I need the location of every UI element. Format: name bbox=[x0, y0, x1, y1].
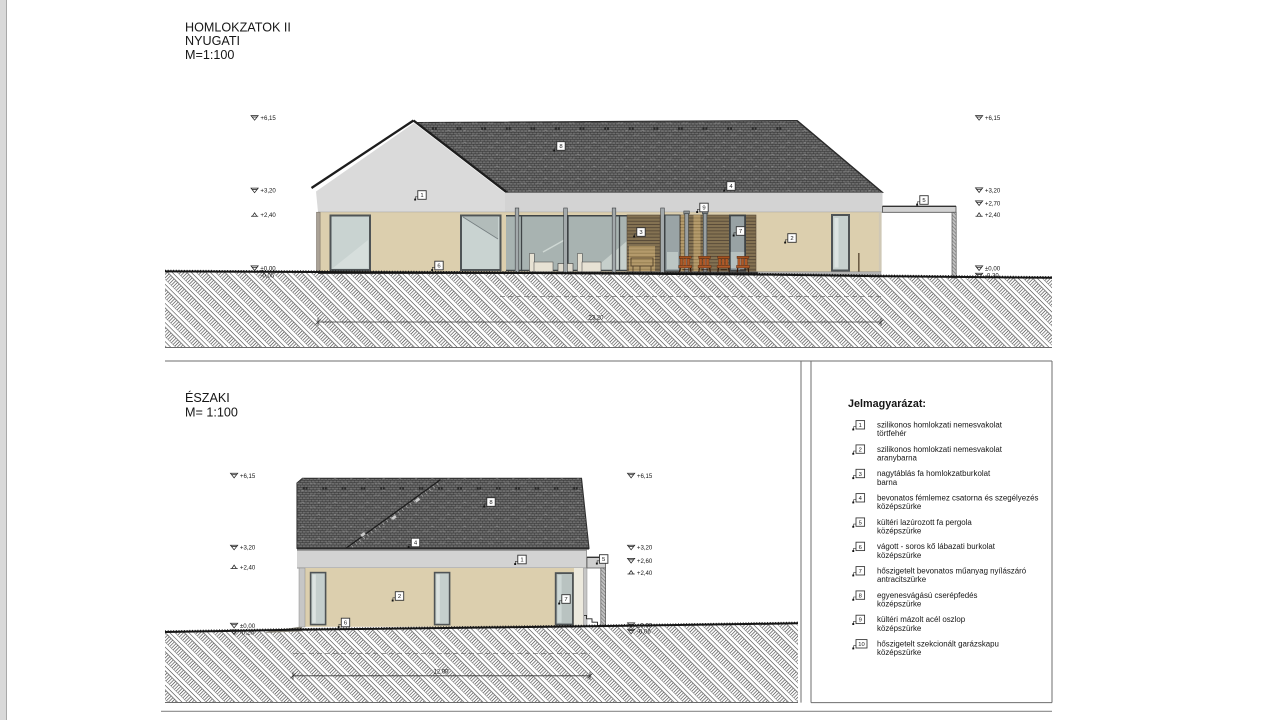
svg-text:hőszigetelt szekcionált garázs: hőszigetelt szekcionált garázskapu bbox=[877, 640, 999, 649]
svg-text:+6,15: +6,15 bbox=[260, 115, 276, 122]
svg-text:+6,15: +6,15 bbox=[985, 115, 1001, 122]
svg-text:-0,06: -0,06 bbox=[637, 629, 652, 636]
svg-text:+2,40: +2,40 bbox=[260, 212, 276, 219]
svg-text:2: 2 bbox=[859, 447, 862, 453]
svg-text:+3,20: +3,20 bbox=[637, 545, 653, 552]
svg-text:+2,40: +2,40 bbox=[985, 212, 1001, 219]
svg-text:középszürke: középszürke bbox=[877, 648, 922, 657]
svg-text:+3,20: +3,20 bbox=[240, 545, 256, 552]
svg-text:5: 5 bbox=[859, 520, 862, 526]
svg-text:kültéri lazúrozott fa pergola: kültéri lazúrozott fa pergola bbox=[877, 518, 972, 527]
svg-text:7: 7 bbox=[739, 229, 742, 235]
svg-text:szilikonos homlokzati nemesvak: szilikonos homlokzati nemesvakolat bbox=[877, 445, 1003, 454]
svg-text:kültéri mázolt acél oszlop: kültéri mázolt acél oszlop bbox=[877, 615, 966, 624]
svg-text:12,00: 12,00 bbox=[433, 670, 449, 676]
svg-text:1: 1 bbox=[859, 423, 862, 429]
svg-text:szilikonos homlokzati nemesvak: szilikonos homlokzati nemesvakolat bbox=[877, 421, 1003, 430]
svg-text:+3,20: +3,20 bbox=[985, 187, 1001, 194]
svg-text:2: 2 bbox=[398, 594, 401, 600]
svg-text:7: 7 bbox=[859, 569, 862, 575]
svg-text:hőszigetelt bevonatos műanyag: hőszigetelt bevonatos műanyag nyílászáró bbox=[877, 567, 1027, 576]
svg-text:-0,05: -0,05 bbox=[260, 272, 275, 279]
svg-text:aranybarna: aranybarna bbox=[877, 454, 918, 463]
svg-text:8: 8 bbox=[859, 593, 862, 599]
svg-text:10: 10 bbox=[858, 642, 864, 648]
svg-text:Jelmagyarázat:: Jelmagyarázat: bbox=[848, 398, 926, 410]
svg-text:7: 7 bbox=[564, 597, 567, 603]
svg-text:ÉSZAKI: ÉSZAKI bbox=[185, 390, 230, 405]
svg-text:+2,70: +2,70 bbox=[985, 200, 1001, 207]
svg-text:középszürke: középszürke bbox=[877, 527, 922, 536]
svg-text:+2,40: +2,40 bbox=[637, 570, 653, 577]
svg-text:1: 1 bbox=[420, 193, 423, 199]
svg-text:bevonatos fémlemez csatorna és: bevonatos fémlemez csatorna és szegélyez… bbox=[877, 494, 1038, 503]
svg-text:1: 1 bbox=[520, 558, 523, 564]
svg-text:3: 3 bbox=[859, 472, 862, 478]
svg-text:középszürke: középszürke bbox=[877, 624, 922, 633]
svg-text:+3,20: +3,20 bbox=[260, 188, 276, 195]
svg-text:középszürke: középszürke bbox=[877, 502, 922, 511]
svg-text:nagytáblás fa homlokzatburkola: nagytáblás fa homlokzatburkolat bbox=[877, 469, 991, 478]
svg-text:NYUGATI: NYUGATI bbox=[185, 34, 240, 48]
svg-text:-0,30: -0,30 bbox=[985, 273, 1000, 280]
svg-text:+2,60: +2,60 bbox=[637, 558, 653, 565]
svg-text:23,20: 23,20 bbox=[588, 316, 604, 322]
svg-text:barna: barna bbox=[877, 478, 898, 487]
svg-text:törtfehér: törtfehér bbox=[877, 429, 907, 438]
svg-text:középszürke: középszürke bbox=[877, 600, 922, 609]
svg-text:-0,20: -0,20 bbox=[240, 629, 255, 636]
svg-text:középszürke: középszürke bbox=[877, 551, 922, 560]
svg-text:+6,15: +6,15 bbox=[637, 473, 653, 480]
svg-text:+6,15: +6,15 bbox=[240, 473, 256, 480]
svg-text:M= 1:100: M= 1:100 bbox=[185, 406, 238, 420]
svg-text:vágott - soros kő lábazati bur: vágott - soros kő lábazati burkolat bbox=[877, 542, 996, 551]
svg-text:9: 9 bbox=[859, 618, 862, 624]
svg-text:+2,40: +2,40 bbox=[240, 564, 256, 571]
svg-text:2: 2 bbox=[790, 236, 793, 242]
svg-text:antracitszürke: antracitszürke bbox=[877, 575, 927, 584]
svg-text:HOMLOKZATOK II: HOMLOKZATOK II bbox=[185, 21, 291, 35]
svg-text:egyenesvágású cserépfedés: egyenesvágású cserépfedés bbox=[877, 591, 978, 600]
svg-text:9: 9 bbox=[702, 206, 705, 212]
svg-text:6: 6 bbox=[859, 545, 862, 551]
svg-text:M=1:100: M=1:100 bbox=[185, 48, 234, 62]
svg-text:±0,00: ±0,00 bbox=[985, 265, 1001, 272]
